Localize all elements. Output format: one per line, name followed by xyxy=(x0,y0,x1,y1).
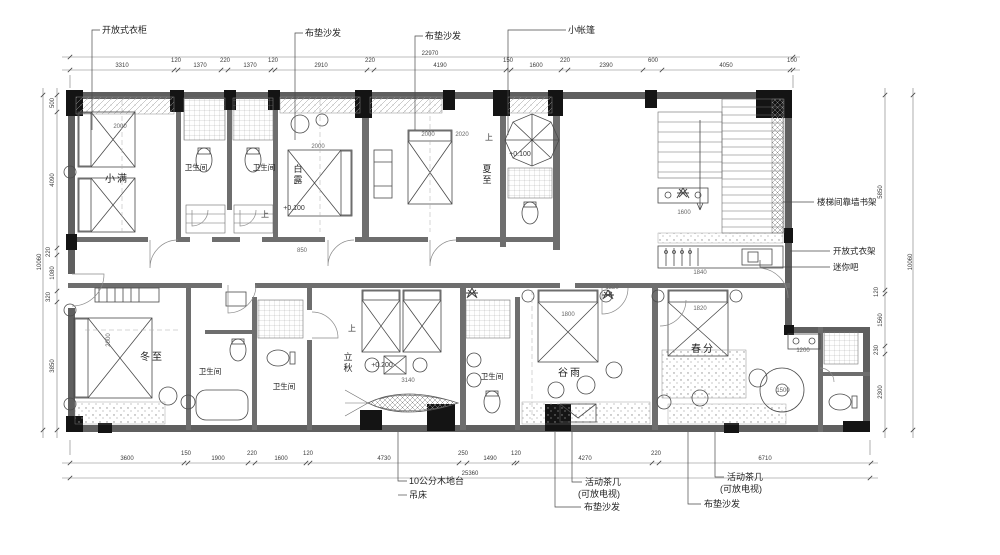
bathroom-bottom-1 xyxy=(196,292,248,420)
bathroom-bottom-2 xyxy=(258,300,303,366)
bed-xiazhi xyxy=(374,130,452,204)
bed-guyu xyxy=(522,290,622,398)
dim-bottom: 6710 xyxy=(758,456,772,462)
dim-right: 2300 xyxy=(878,385,884,399)
room-label-dongzhi: 冬至 xyxy=(140,350,164,363)
dim-inner: 1200 xyxy=(796,348,810,354)
dim-bottom-total: 25360 xyxy=(462,471,479,477)
dim-bottom: 220 xyxy=(247,451,258,457)
dim-bottom: 1490 xyxy=(483,456,497,462)
dim-inner: 2020 xyxy=(455,132,469,138)
dim-bottom: 220 xyxy=(651,451,662,457)
console-table-plant xyxy=(658,188,708,203)
callout-wood-platform: 10公分木地台 xyxy=(409,475,464,486)
dim-top: 600 xyxy=(648,58,659,64)
dim-bottom: 1900 xyxy=(211,456,225,462)
dim-top: 1600 xyxy=(529,63,543,69)
dim-inner: 1600 xyxy=(677,210,691,216)
dim-left: 4090 xyxy=(50,173,56,187)
dim-top: 1370 xyxy=(243,63,257,69)
staircase xyxy=(658,99,784,243)
dim-right-total: 10060 xyxy=(908,253,914,270)
stair-wall-bookshelf xyxy=(772,99,784,233)
dim-left: 500 xyxy=(50,97,56,108)
dim-right: 1560 xyxy=(878,313,884,327)
callout-open-rack: 开放式衣架 xyxy=(833,246,876,256)
dim-inner: 2000 xyxy=(113,124,127,130)
dim-top-total: 22970 xyxy=(422,51,439,57)
dim-right: 5850 xyxy=(878,185,884,199)
up-mark: 上 xyxy=(485,133,493,142)
level-marker: +0.200 xyxy=(371,362,393,369)
dim-bottom: 250 xyxy=(458,451,469,457)
bathroom-bottom-3 xyxy=(466,300,510,413)
room-label-xiazhi: 夏至 xyxy=(482,164,491,185)
dim-top: 2910 xyxy=(314,63,328,69)
dim-inner: 3140 xyxy=(401,378,415,384)
dim-top: 100 xyxy=(787,58,798,64)
callout-tea-table-1b: (可放电视) xyxy=(578,488,620,499)
dim-inner: 2000 xyxy=(421,132,435,138)
room-label-bath-3: 卫生间 xyxy=(199,366,222,376)
room-label-bath-4: 卫生间 xyxy=(273,381,296,391)
dim-bottom: 120 xyxy=(303,451,314,457)
dim-top: 220 xyxy=(365,58,376,64)
callout-small-tent: 小帐篷 xyxy=(568,24,595,35)
dim-left: 320 xyxy=(46,291,52,302)
dim-top: 220 xyxy=(560,58,571,64)
dim-bottom: 4270 xyxy=(578,456,592,462)
dim-bottom: 1600 xyxy=(274,456,288,462)
dim-right: 120 xyxy=(874,286,880,297)
open-clothes-rack xyxy=(658,246,783,268)
room-label-guyu: 谷雨 xyxy=(558,367,582,379)
dim-inner: 1840 xyxy=(693,270,707,276)
dim-top: 3310 xyxy=(115,63,129,69)
dim-bottom: 150 xyxy=(181,451,192,457)
dim-inner: 1800 xyxy=(561,312,575,318)
floor-plan-stage: 开放式衣柜布垫沙发布垫沙发小帐篷楼梯间靠墙书架开放式衣架迷你吧10公分木地台吊床… xyxy=(0,0,1000,550)
up-mark: 上 xyxy=(348,324,356,333)
dim-inner: 2000 xyxy=(311,144,325,150)
tent-room xyxy=(505,114,559,224)
room-label-bailu: 白露 xyxy=(293,163,302,185)
callout-tea-table-2: 活动茶几 xyxy=(727,471,763,482)
dim-bottom: 3600 xyxy=(120,456,134,462)
floor-plan-drawing: 开放式衣柜布垫沙发布垫沙发小帐篷楼梯间靠墙书架开放式衣架迷你吧10公分木地台吊床… xyxy=(0,0,1000,550)
dim-top: 2390 xyxy=(599,63,613,69)
room-label-bath-1: 卫生间 xyxy=(185,162,208,172)
wardrobe-hatch-bands xyxy=(76,97,552,114)
callout-tea-table-2b: (可放电视) xyxy=(720,483,762,494)
callout-minibar: 迷你吧 xyxy=(833,262,859,272)
room-label-bath-5: 卫生间 xyxy=(481,371,504,381)
dim-inner: 2000 xyxy=(106,333,112,347)
callout-cushion-sofa-4: 布垫沙发 xyxy=(704,498,740,509)
dim-right: 230 xyxy=(874,344,880,355)
dim-inner: 1820 xyxy=(693,306,707,312)
dim-top: 220 xyxy=(220,58,231,64)
callout-hammock: 吊床 xyxy=(409,489,427,500)
room-label-liqiu: 立秋 xyxy=(343,351,352,373)
dim-top: 120 xyxy=(268,58,279,64)
dim-top: 120 xyxy=(171,58,182,64)
dim-left: 3850 xyxy=(50,359,56,373)
callout-open-wardrobe: 开放式衣柜 xyxy=(102,24,147,35)
bed-xiaoman-1 xyxy=(78,112,135,167)
platform-strip-guyu xyxy=(522,402,650,424)
dim-inner: 1320 xyxy=(605,285,619,291)
room-label-chunfen: 春分 xyxy=(691,343,715,355)
dim-top: 1370 xyxy=(193,63,207,69)
dim-bottom: 120 xyxy=(511,451,522,457)
callout-stair-bookshelf: 楼梯间靠墙书架 xyxy=(817,197,877,207)
dim-top: 4050 xyxy=(719,63,733,69)
callout-cushion-sofa-1: 布垫沙发 xyxy=(305,27,341,38)
callout-cushion-sofa-3: 布垫沙发 xyxy=(584,501,620,512)
dim-top: 4190 xyxy=(433,63,447,69)
dim-left: 1080 xyxy=(50,266,56,280)
room-label-bath-2: 卫生间 xyxy=(253,162,276,172)
up-mark: 上 xyxy=(261,210,269,219)
pebble-band xyxy=(658,233,783,243)
dim-top: 150 xyxy=(503,58,514,64)
dim-left-total: 10060 xyxy=(37,253,43,270)
bed-xiaoman-2 xyxy=(78,178,135,232)
dim-inner: 1500 xyxy=(776,388,790,394)
dim-left: 220 xyxy=(46,246,52,257)
bed-dongzhi xyxy=(64,288,195,410)
room-label-xiaoman: 小满 xyxy=(105,173,129,185)
level-marker: +0.100 xyxy=(509,151,531,158)
platform-strip-dongzhi xyxy=(75,402,165,424)
dim-inner: 850 xyxy=(297,248,308,254)
level-marker: +0.100 xyxy=(283,205,305,212)
callout-tea-table-1: 活动茶几 xyxy=(585,476,621,487)
callout-cushion-sofa-2: 布垫沙发 xyxy=(425,30,461,41)
dim-bottom: 4730 xyxy=(377,456,391,462)
minibar xyxy=(742,249,772,265)
